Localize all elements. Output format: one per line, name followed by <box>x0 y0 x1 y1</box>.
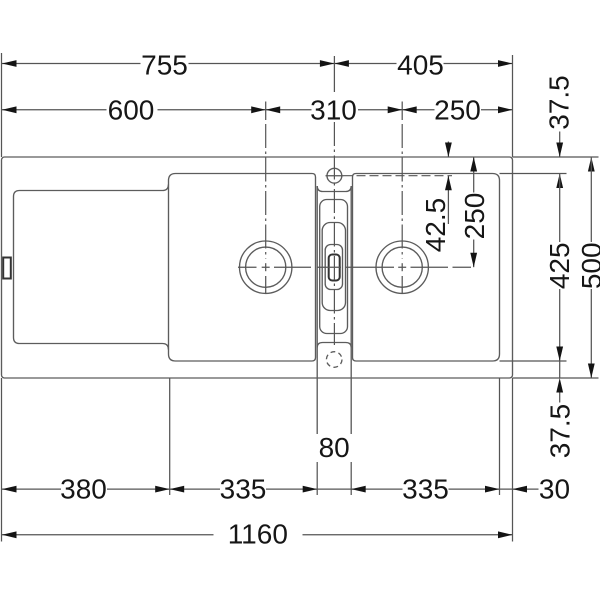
svg-text:405: 405 <box>397 50 444 81</box>
svg-text:600: 600 <box>108 94 155 125</box>
svg-text:380: 380 <box>60 474 107 505</box>
svg-text:1160: 1160 <box>228 518 288 549</box>
svg-text:250: 250 <box>434 94 481 125</box>
svg-text:335: 335 <box>402 474 449 505</box>
svg-text:250: 250 <box>459 193 490 240</box>
svg-text:425: 425 <box>544 242 575 289</box>
svg-text:500: 500 <box>576 242 600 289</box>
svg-text:755: 755 <box>141 50 188 81</box>
svg-text:37.5: 37.5 <box>544 75 575 130</box>
svg-text:37.5: 37.5 <box>544 404 575 459</box>
svg-text:80: 80 <box>319 432 350 463</box>
svg-text:335: 335 <box>220 474 267 505</box>
svg-text:30: 30 <box>539 474 570 505</box>
svg-text:42.5: 42.5 <box>420 198 451 253</box>
svg-text:310: 310 <box>310 94 357 125</box>
